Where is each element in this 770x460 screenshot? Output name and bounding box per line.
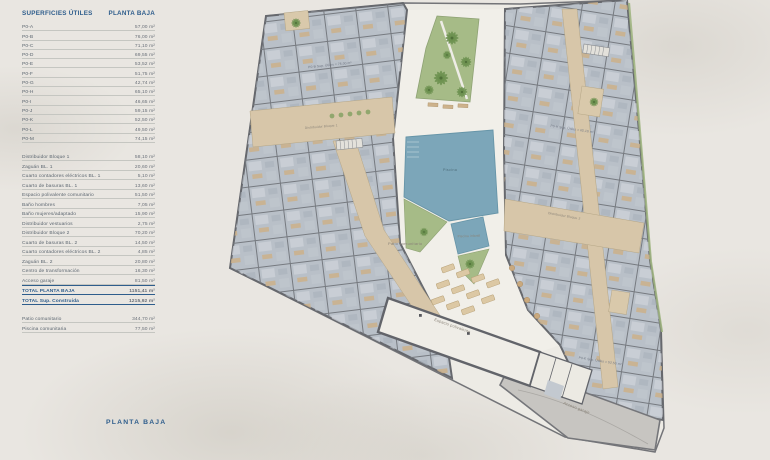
patio-block2b: [609, 290, 630, 315]
plan-title: PLANTA BAJA: [106, 419, 166, 426]
floor-plan: Distribuidor Bloque 1 P0-B Sup. Útiles =…: [0, 0, 770, 460]
plan-sheet: SUPERFICIES ÚTILES PLANTA BAJA P0-A 57,0…: [0, 0, 770, 460]
patio-label: Patio comunitario: [388, 241, 423, 246]
infant-pool-label: Piscina infantil: [458, 234, 481, 239]
pool-label: Piscina: [443, 168, 458, 172]
